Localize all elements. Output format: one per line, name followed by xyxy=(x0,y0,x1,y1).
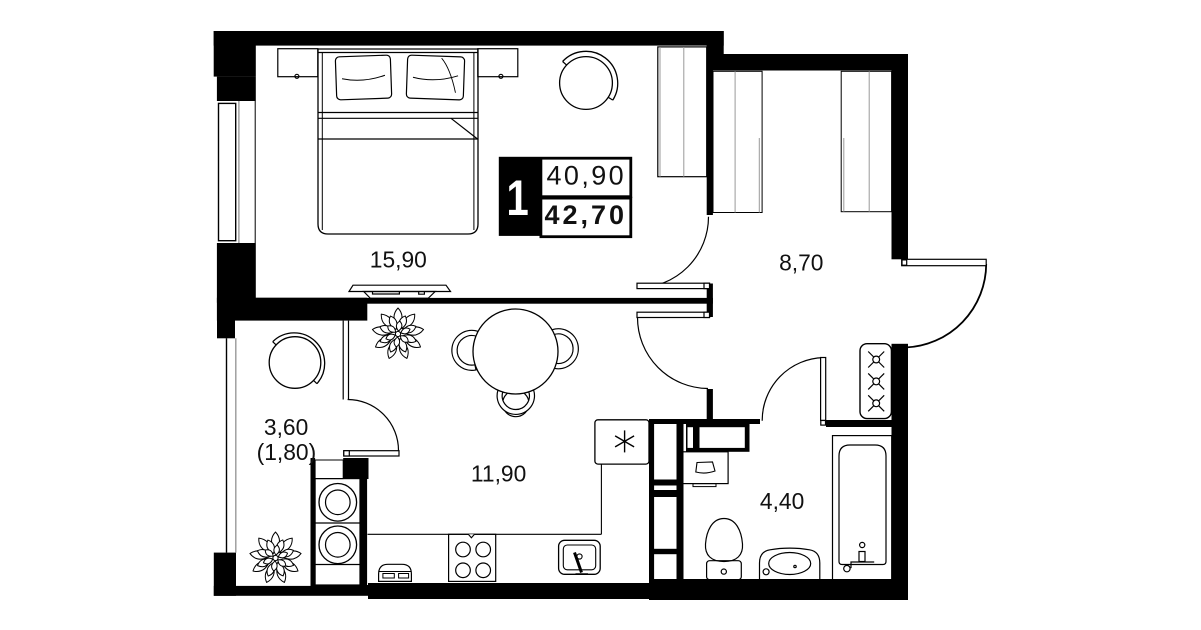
svg-text:4,40: 4,40 xyxy=(760,488,804,514)
svg-text:11,90: 11,90 xyxy=(471,460,526,486)
svg-text:8,70: 8,70 xyxy=(779,250,823,276)
svg-text:1: 1 xyxy=(506,170,528,226)
svg-text:15,90: 15,90 xyxy=(370,246,427,272)
svg-text:(1,80): (1,80) xyxy=(257,439,317,465)
svg-text:42,70: 42,70 xyxy=(545,200,628,230)
svg-text:3,60: 3,60 xyxy=(264,414,308,440)
svg-text:40,90: 40,90 xyxy=(547,161,627,191)
